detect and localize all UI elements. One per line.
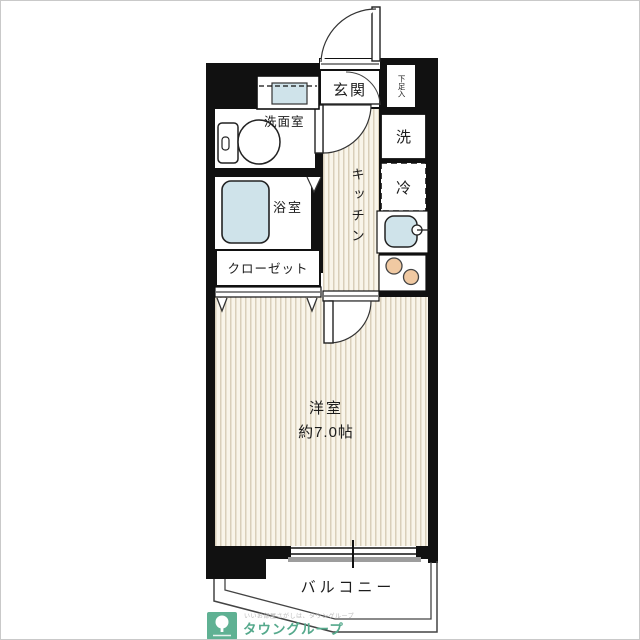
floorplan-image: 玄関 下足入 洗面室 浴室 キッチン 洗 冷 クローゼット 洋室 約7.0帖 バ… bbox=[0, 0, 640, 640]
genkan-label: 玄関 bbox=[323, 73, 377, 105]
entrance-door-arc bbox=[321, 9, 376, 62]
washroom-label: 洗面室 bbox=[264, 111, 305, 130]
fixtures-overlay bbox=[1, 1, 639, 639]
balcony-label: バルコニー bbox=[273, 575, 423, 597]
washroom-door-arc bbox=[323, 105, 371, 153]
bathroom-label: 浴室 bbox=[273, 197, 303, 216]
stove-burner-1 bbox=[386, 258, 402, 274]
window-sill bbox=[288, 557, 421, 562]
shoe-box-label: 下足入 bbox=[397, 75, 405, 98]
closet-fold-mark-left bbox=[217, 298, 227, 311]
tree-icon bbox=[207, 612, 237, 640]
washroom-door-leaf bbox=[315, 105, 323, 153]
stove-counter bbox=[379, 255, 426, 291]
bath-door-mark bbox=[307, 177, 321, 192]
closet-label: クローゼット bbox=[215, 249, 321, 285]
bathtub bbox=[222, 181, 269, 243]
fridge-label: 冷 bbox=[381, 163, 426, 211]
washer-label: 洗 bbox=[381, 114, 426, 159]
main-room-size-label: 約7.0帖 bbox=[241, 419, 411, 443]
closet-fold-mark-right bbox=[307, 298, 317, 311]
toilet-flush bbox=[222, 137, 229, 150]
tree-trunk bbox=[221, 625, 224, 632]
room-door-leaf bbox=[324, 301, 333, 343]
shoe-box: 下足入 bbox=[386, 64, 416, 108]
brand-name: タウングループ bbox=[243, 618, 344, 638]
brand-logo bbox=[207, 612, 237, 640]
entrance-door-leaf bbox=[372, 7, 380, 61]
main-room-label: 洋室 bbox=[241, 395, 411, 419]
stove-burner-2 bbox=[404, 270, 419, 285]
kitchen-label: キッチン bbox=[346, 167, 366, 249]
room-door-arc bbox=[329, 301, 371, 343]
